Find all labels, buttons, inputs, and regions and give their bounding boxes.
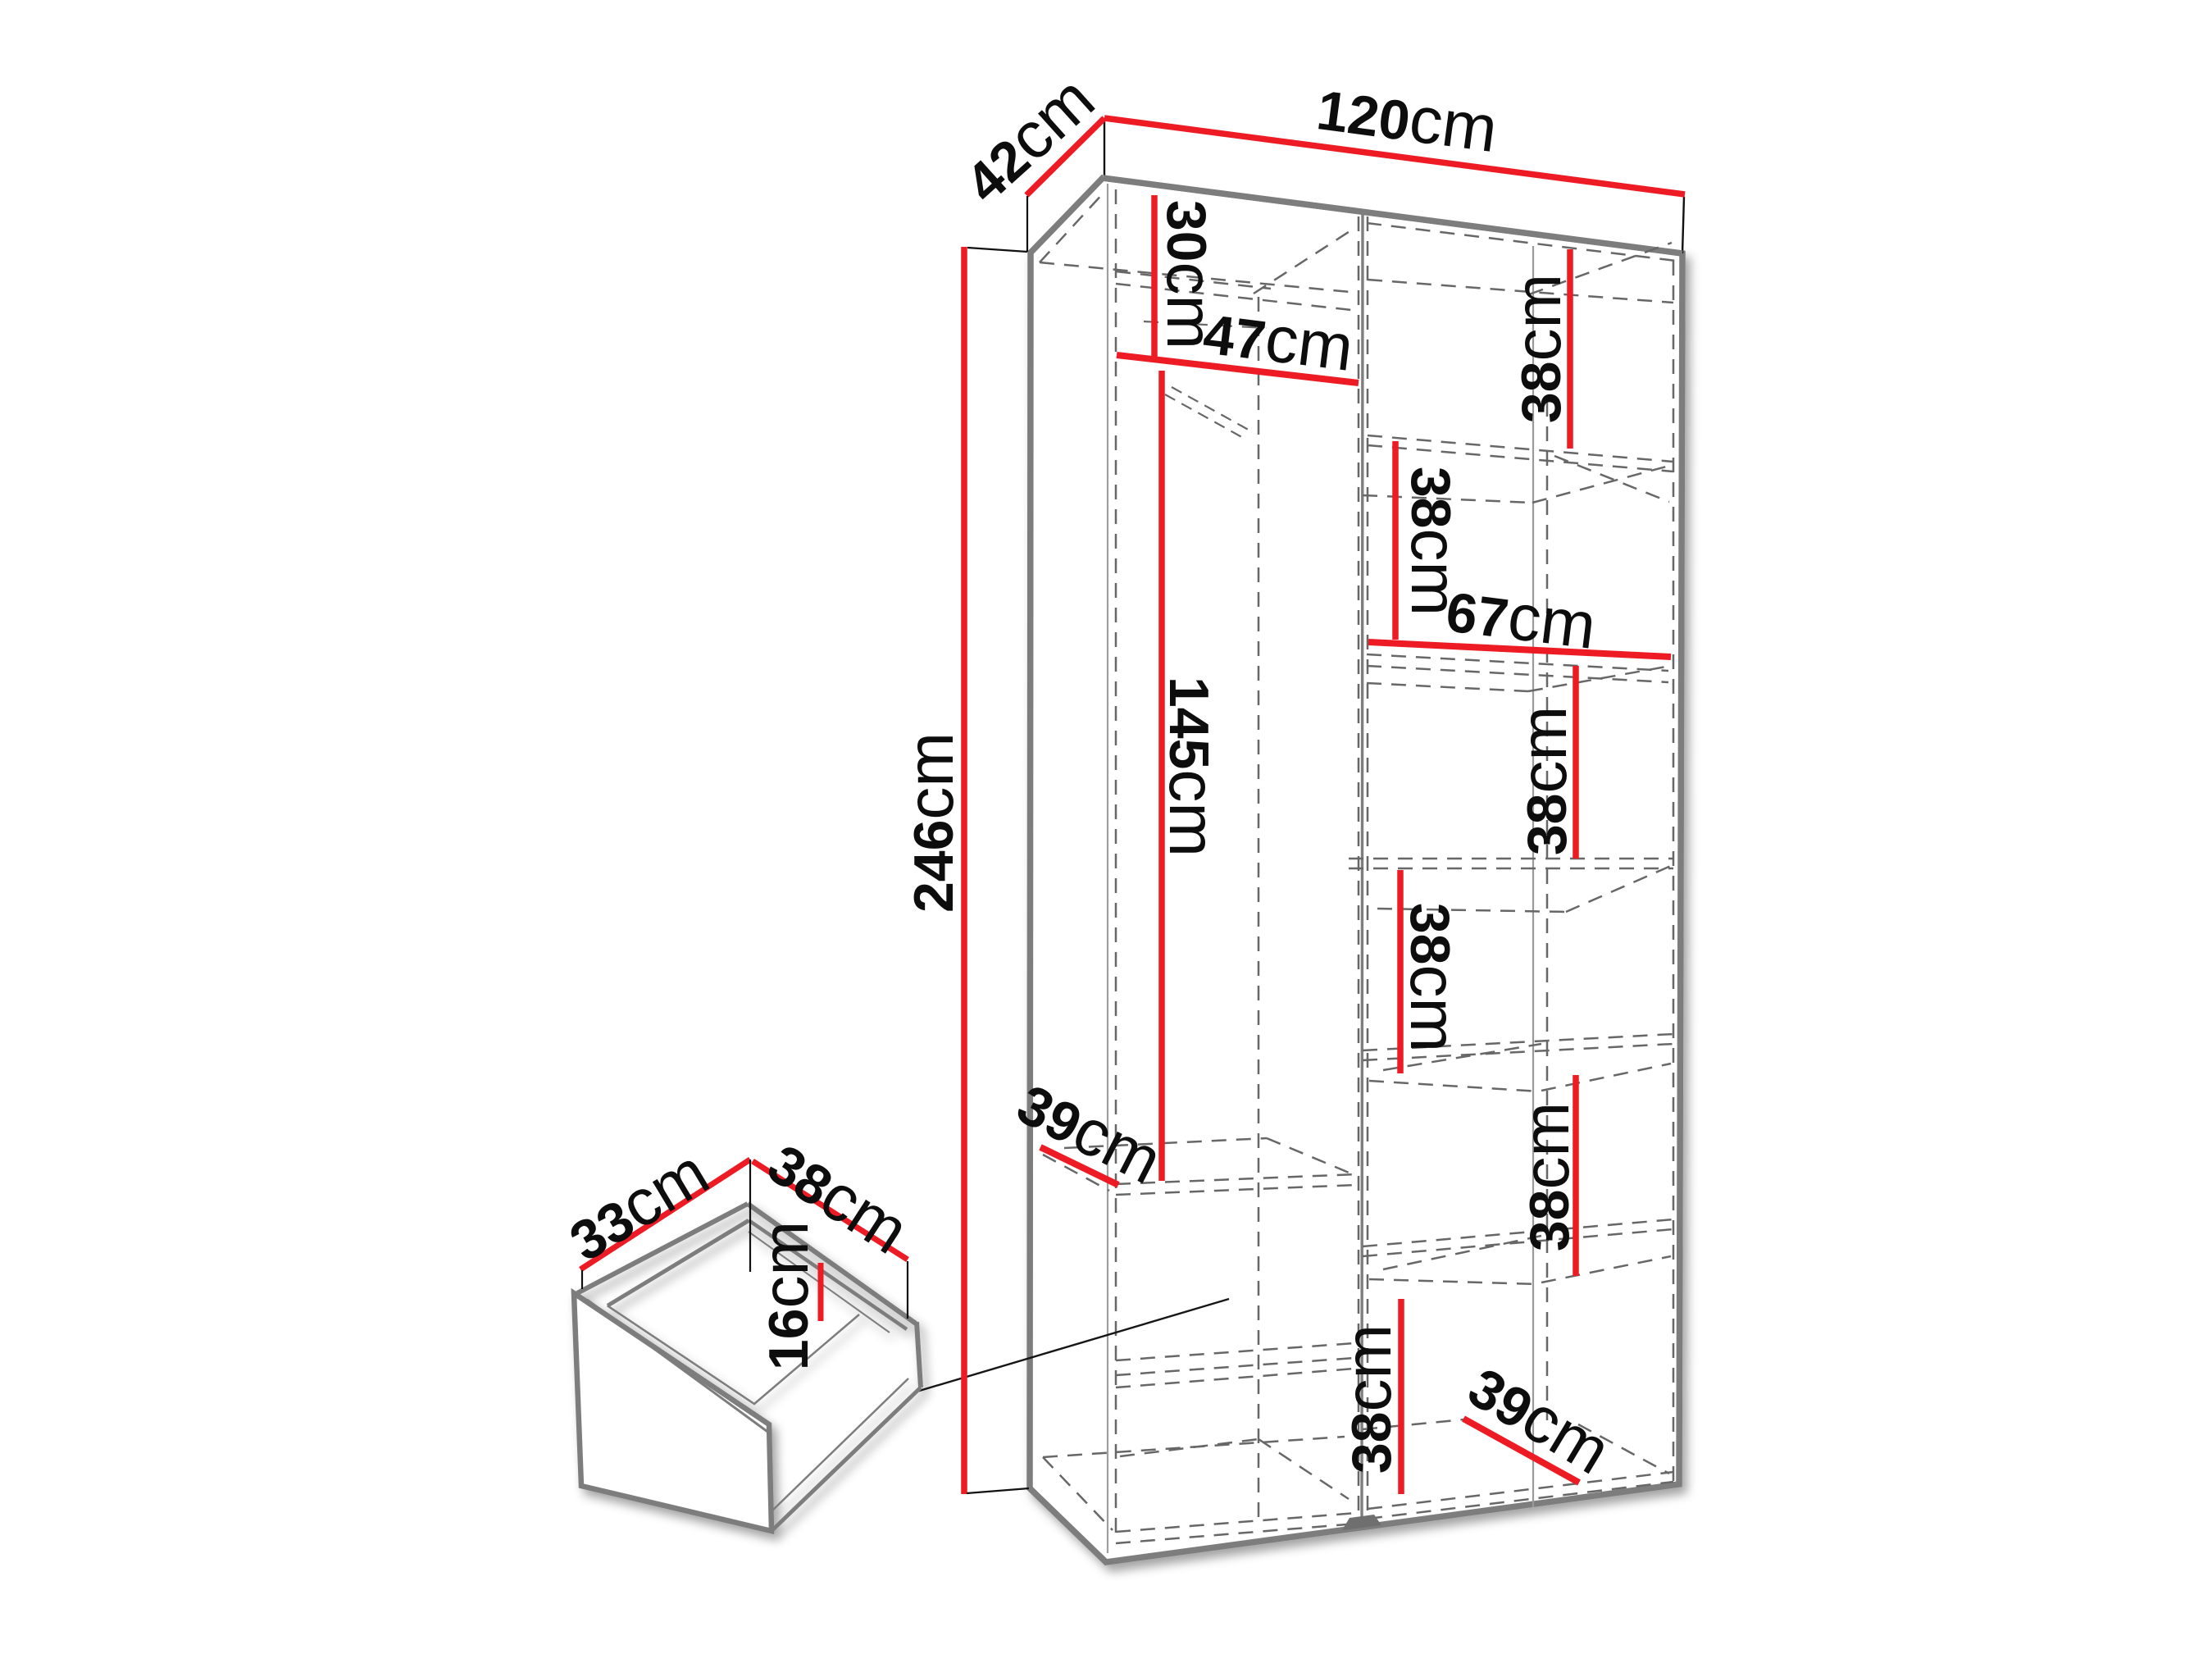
- svg-text:38cm: 38cm: [1509, 1102, 1582, 1251]
- svg-text:38cm: 38cm: [1397, 903, 1470, 1052]
- svg-text:38cm: 38cm: [1501, 274, 1574, 423]
- svg-text:246cm: 246cm: [894, 732, 967, 913]
- svg-text:38cm: 38cm: [1398, 467, 1471, 616]
- svg-text:38cm: 38cm: [1507, 706, 1580, 855]
- svg-text:145cm: 145cm: [1156, 677, 1229, 857]
- svg-text:16cm: 16cm: [749, 1221, 822, 1370]
- svg-text:38cm: 38cm: [1331, 1324, 1404, 1474]
